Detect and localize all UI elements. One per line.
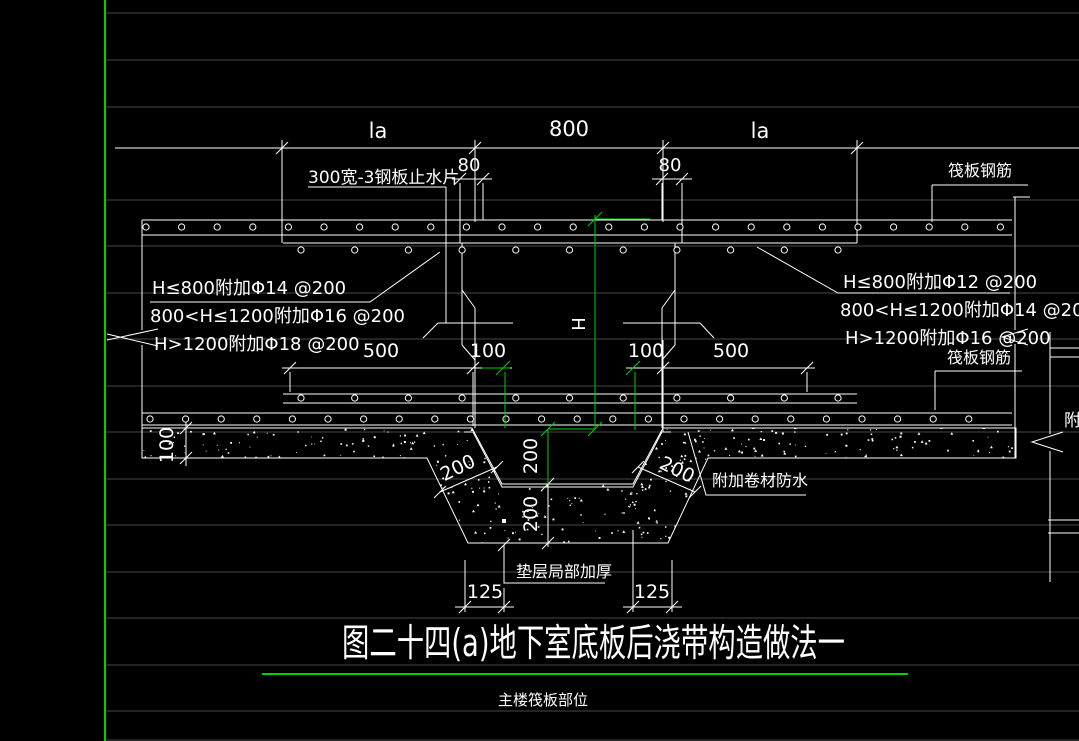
dim-200-upper: 200 xyxy=(520,438,542,474)
dim-200-lower: 200 xyxy=(520,496,542,532)
spec-right-2: 800<H≤1200附加Φ14 @200 xyxy=(840,300,1079,321)
leaders xyxy=(150,185,1028,583)
dim-80-left: 80 xyxy=(458,155,481,176)
spec-left-3: H>1200附加Φ18 @200 xyxy=(154,334,360,355)
waterstop-plate-right xyxy=(623,323,714,338)
label-raft-rebar-top: 筏板钢筋 xyxy=(948,161,1012,180)
label-membrane: 附加卷材防水 xyxy=(712,471,808,490)
cushion-layer xyxy=(142,426,1017,546)
spec-right-3: H>1200附加Φ16 @200 xyxy=(845,328,1051,349)
slab-section xyxy=(107,148,1079,582)
dimensions xyxy=(186,140,857,612)
concrete-stipple xyxy=(142,426,1017,546)
selected-dim-lines xyxy=(482,215,650,484)
dim-100-left: 100 xyxy=(470,340,506,362)
dim-200-slope-right: 200 xyxy=(656,452,698,488)
dim-200-slope-left: 200 xyxy=(437,450,479,486)
spec-right-1: H≤800附加Φ12 @200 xyxy=(843,272,1037,293)
drawing-title: 图二十四(a)地下室底板后浇带构造做法一 xyxy=(342,621,845,665)
dim-80-right: 80 xyxy=(659,155,682,176)
label-right-partial: 附加 xyxy=(1064,411,1079,431)
dim-125-left: 125 xyxy=(467,581,503,603)
dim-la-left: la xyxy=(369,119,388,143)
joint-face-right xyxy=(662,243,675,428)
dim-800: 800 xyxy=(549,117,589,141)
waterstop-leader xyxy=(308,187,446,323)
waterstop-plate-left xyxy=(423,323,513,338)
label-thickening: 垫层局部加厚 xyxy=(516,562,612,581)
dim-100-cushion: 100 xyxy=(156,427,178,463)
adjacent-detail-partial xyxy=(1032,332,1079,582)
dim-la-right: la xyxy=(751,119,770,143)
dim-125-right: 125 xyxy=(634,581,670,603)
label-steel-waterstop: 300宽-3钢板止水片 xyxy=(308,168,459,188)
cushion-outline xyxy=(142,428,1016,543)
spec-left-1: H≤800附加Φ14 @200 xyxy=(152,278,346,299)
cad-viewport: la 800 la 80 80 300宽-3钢板止水片 筏板钢筋 筏板钢筋 H≤… xyxy=(0,0,1079,741)
spec-left-2: 800<H≤1200附加Φ16 @200 xyxy=(150,306,405,327)
dim-500-right: 500 xyxy=(713,340,749,362)
cad-canvas[interactable]: la 800 la 80 80 300宽-3钢板止水片 筏板钢筋 筏板钢筋 H≤… xyxy=(0,0,1079,741)
drawing-subtitle: 主楼筏板部位 xyxy=(498,691,588,709)
label-raft-rebar-bottom: 筏板钢筋 xyxy=(947,348,1011,367)
dim-500-left: 500 xyxy=(363,340,399,362)
dim-100-right: 100 xyxy=(628,340,664,362)
leader-dot xyxy=(502,519,506,523)
raft-rebar-bottom-leader xyxy=(935,371,1022,410)
raft-rebar-top-leader xyxy=(932,185,1028,222)
rebar-and-ticks xyxy=(143,142,1004,613)
height-symbol: H xyxy=(567,317,588,331)
